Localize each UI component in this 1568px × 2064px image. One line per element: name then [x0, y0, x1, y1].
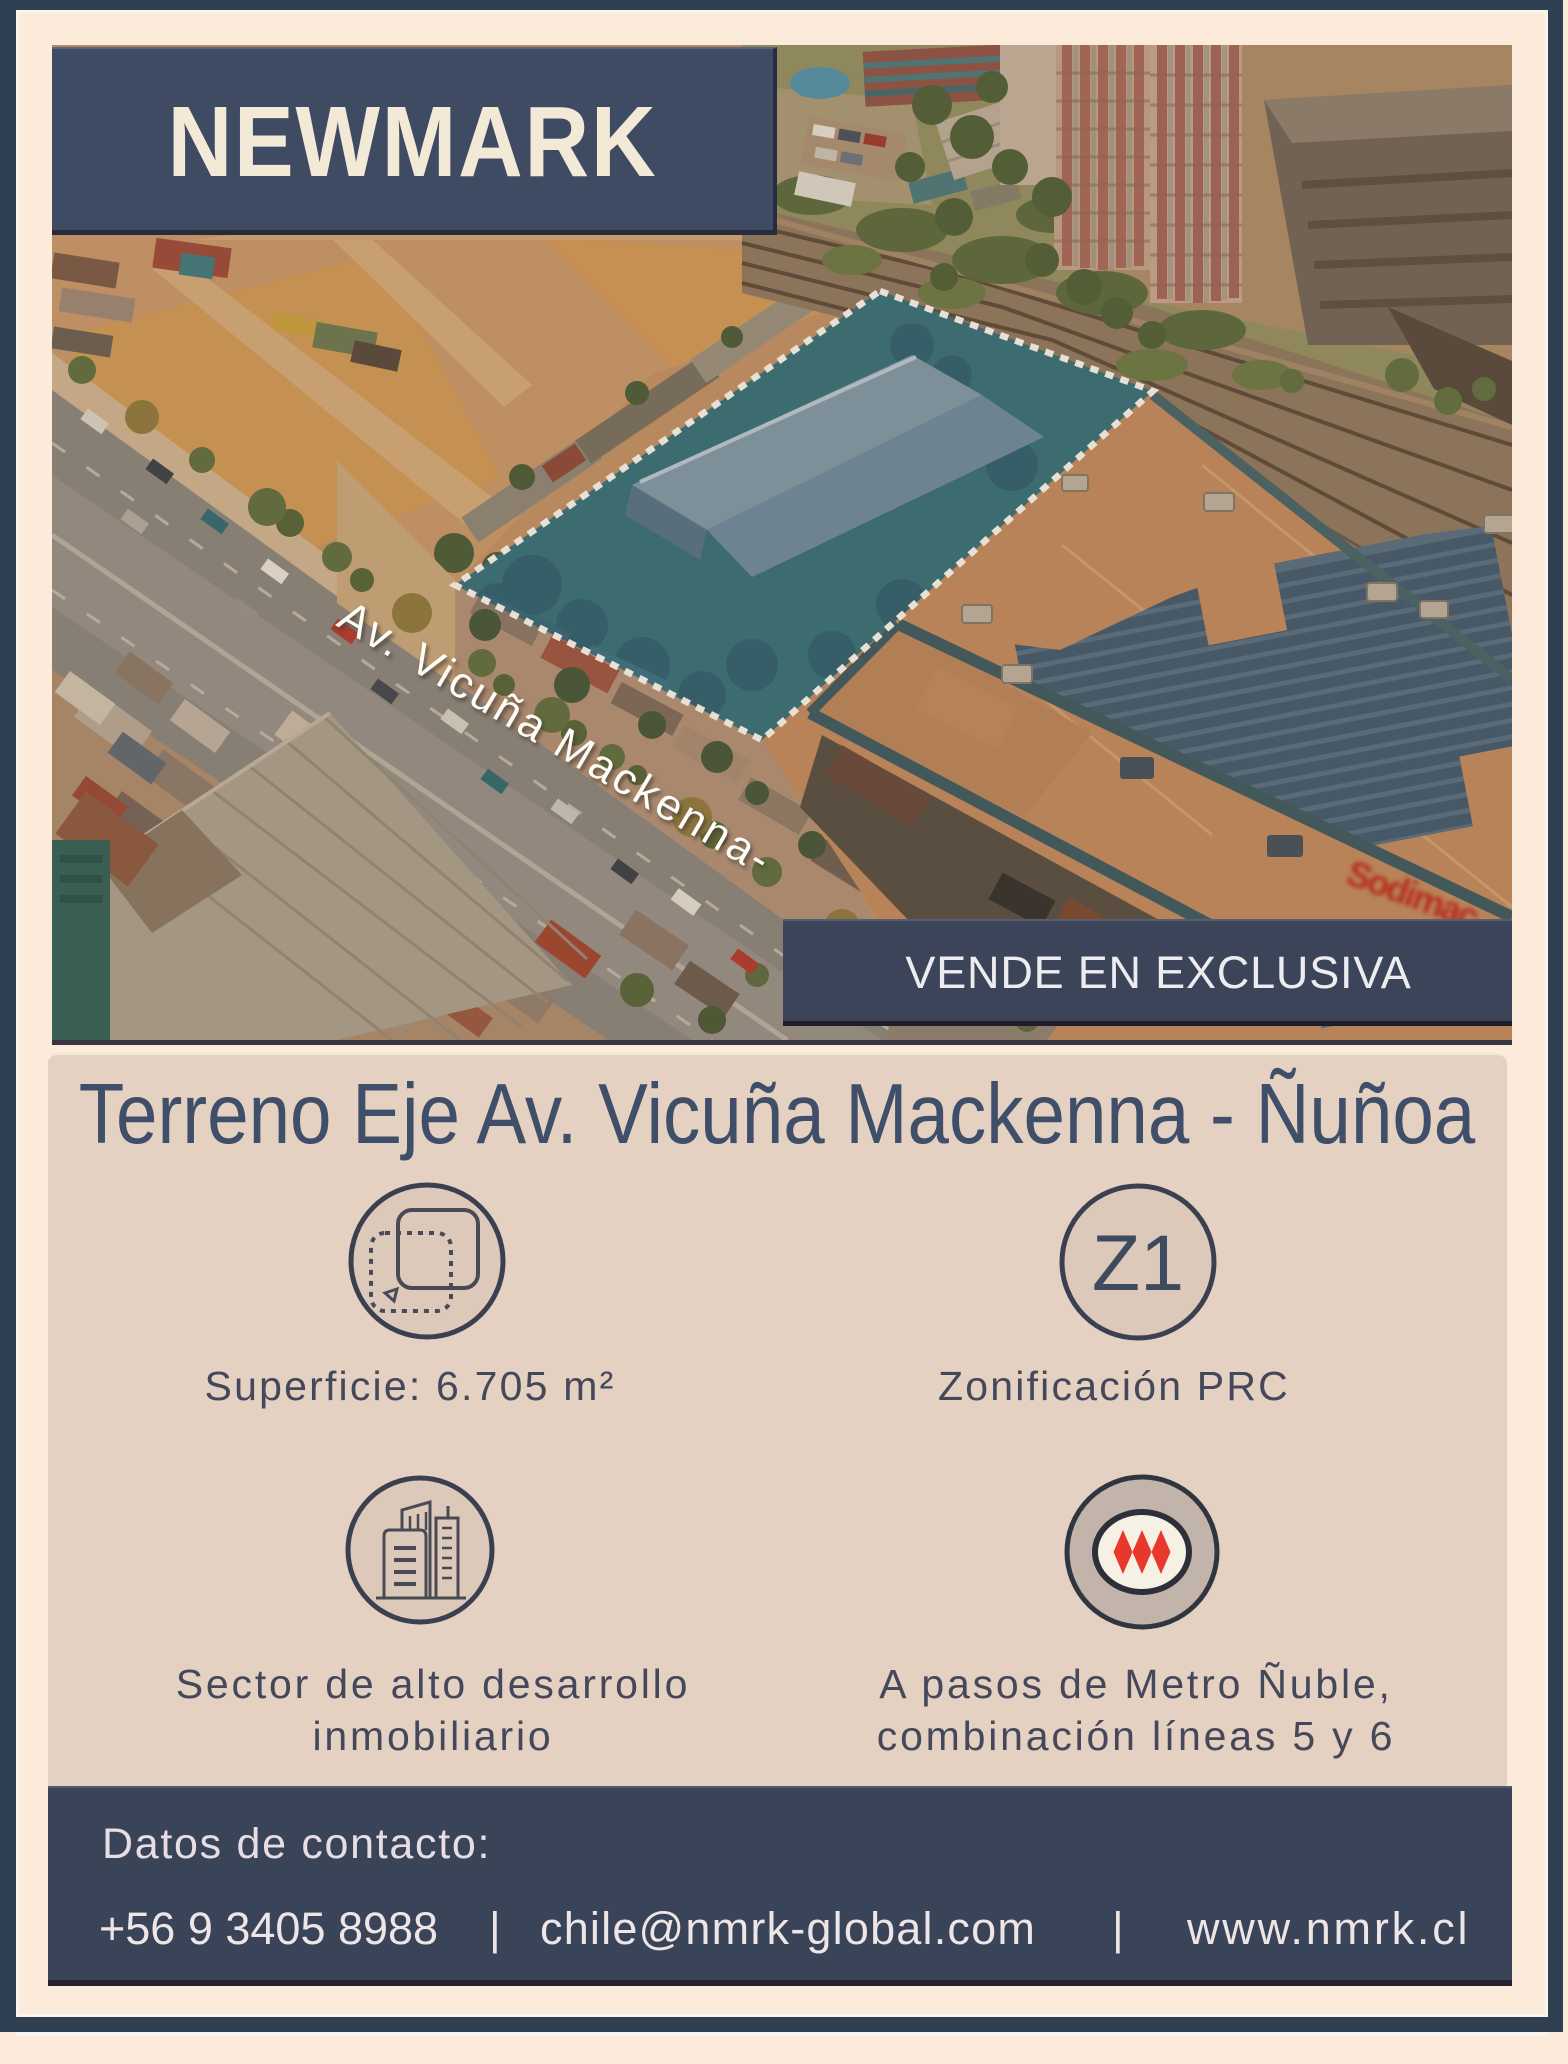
- svg-text:Z1: Z1: [1092, 1218, 1184, 1307]
